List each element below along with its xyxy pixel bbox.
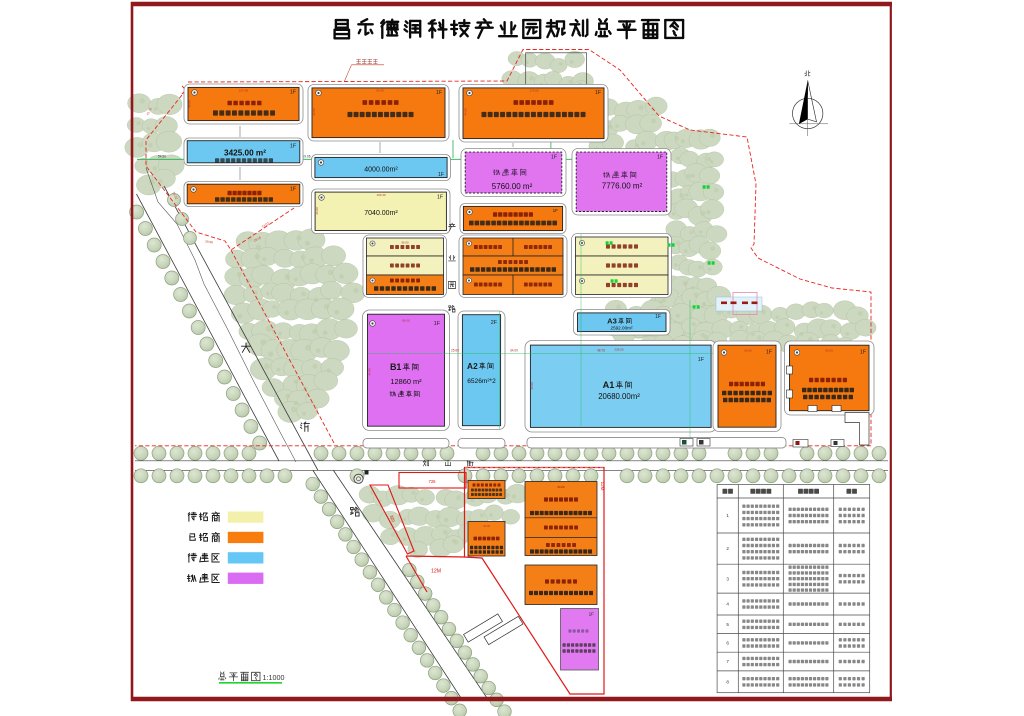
svg-text:25.60: 25.60	[451, 349, 459, 353]
svg-text:90.30: 90.30	[376, 89, 384, 93]
svg-text:1F: 1F	[290, 187, 296, 193]
svg-text:103.30: 103.30	[376, 193, 386, 197]
svg-text:7776.00 m²: 7776.00 m²	[602, 182, 643, 191]
svg-text:1F: 1F	[595, 90, 601, 96]
svg-text:1F: 1F	[589, 612, 595, 617]
svg-text:96.00: 96.00	[402, 241, 409, 245]
svg-text:34.00: 34.00	[510, 349, 518, 353]
svg-text:7040.00m²: 7040.00m²	[364, 210, 398, 217]
svg-text:4000.00m²: 4000.00m²	[364, 167, 398, 174]
svg-text:90.00: 90.00	[825, 349, 833, 353]
svg-text:2: 2	[473, 361, 478, 371]
svg-text:44.00: 44.00	[464, 108, 468, 116]
svg-text:1: 1	[609, 380, 614, 390]
svg-text:12M: 12M	[431, 569, 441, 575]
svg-text:1: 1	[726, 513, 729, 518]
svg-text:60.00: 60.00	[558, 485, 565, 489]
svg-text:3425.00 m²: 3425.00 m²	[224, 149, 266, 158]
svg-text:107.06: 107.06	[239, 89, 249, 93]
svg-text:1F: 1F	[437, 195, 443, 201]
svg-text:2: 2	[726, 546, 729, 551]
svg-text:44.00: 44.00	[315, 207, 319, 215]
svg-text:1F: 1F	[698, 357, 705, 363]
svg-text:44.00: 44.00	[483, 524, 490, 528]
svg-text:3: 3	[613, 317, 617, 326]
svg-text:1F: 1F	[434, 321, 441, 327]
svg-text:12M: 12M	[600, 482, 605, 491]
svg-text:44.00: 44.00	[530, 382, 534, 390]
svg-text:7: 7	[726, 659, 729, 664]
svg-text:5: 5	[726, 622, 729, 627]
svg-text:12860 m²: 12860 m²	[390, 377, 422, 386]
svg-text:44.00: 44.00	[188, 100, 192, 108]
svg-text:86.00: 86.00	[402, 319, 410, 323]
svg-text:60.00: 60.00	[744, 349, 752, 353]
svg-text:179.00: 179.00	[529, 89, 539, 93]
svg-text:6: 6	[726, 641, 729, 646]
svg-text:1F: 1F	[290, 90, 296, 96]
svg-text:1F: 1F	[655, 314, 661, 320]
svg-text:2F: 2F	[491, 320, 498, 326]
svg-text:2592.00m²: 2592.00m²	[611, 326, 633, 331]
svg-text:5760.00 m²: 5760.00 m²	[492, 182, 533, 191]
svg-text:19.06: 19.06	[303, 155, 311, 159]
svg-text:1F: 1F	[860, 350, 866, 356]
svg-text:44.00: 44.00	[312, 108, 316, 116]
svg-text:44.00: 44.00	[368, 368, 372, 376]
svg-text:3: 3	[726, 576, 729, 581]
svg-text:1: 1	[396, 362, 401, 372]
svg-text:1F: 1F	[553, 208, 559, 213]
svg-text:726: 726	[429, 479, 437, 484]
svg-text:48.76: 48.76	[597, 349, 605, 353]
svg-text:228.00: 228.00	[614, 348, 624, 352]
svg-text:8: 8	[726, 679, 729, 684]
svg-text:1F: 1F	[438, 172, 444, 178]
svg-text:1F: 1F	[766, 350, 772, 356]
svg-text:4: 4	[726, 602, 729, 607]
svg-text:1:1000: 1:1000	[263, 673, 285, 682]
svg-text:20680.00m²: 20680.00m²	[598, 392, 640, 401]
svg-text:6526m²*2: 6526m²*2	[467, 378, 496, 385]
svg-text:1F: 1F	[551, 155, 557, 161]
svg-text:1F: 1F	[657, 155, 663, 161]
svg-text:54.56: 54.56	[158, 155, 166, 159]
svg-text:1F: 1F	[290, 144, 296, 150]
svg-text:1F: 1F	[436, 90, 442, 96]
